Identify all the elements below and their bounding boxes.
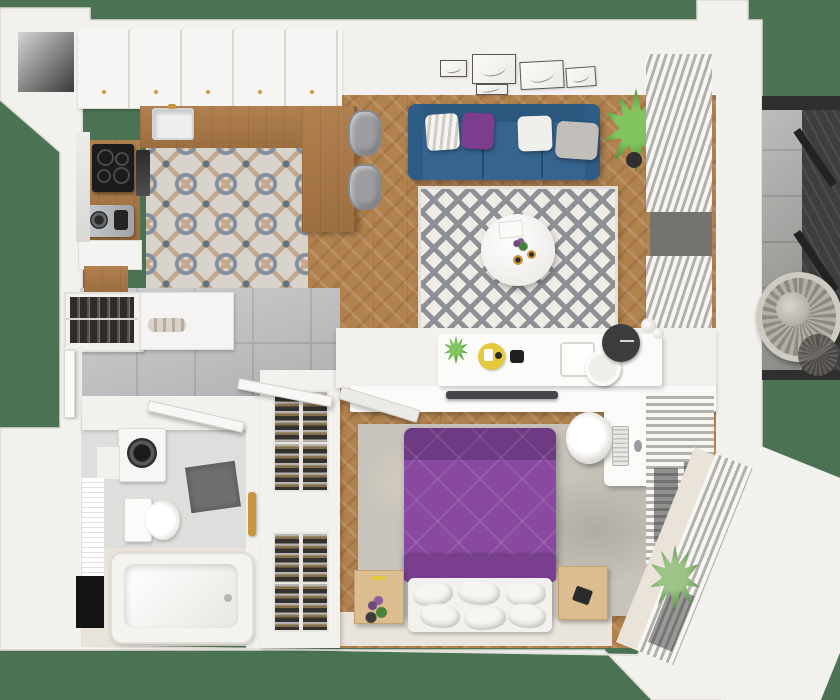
- sofa-pillow-purple: [461, 112, 495, 150]
- nightstand-handle: [372, 576, 386, 580]
- marble-splash-strip: [76, 132, 90, 242]
- toilet-bowl: [146, 500, 180, 540]
- kitchen-floor-tile: [146, 144, 308, 292]
- sofa-pillow-striped: [425, 113, 460, 151]
- shower-mat: [185, 461, 241, 514]
- toilet-paper-holder: [126, 546, 138, 551]
- sphere-lamp: [653, 328, 664, 339]
- oven-panel: [136, 150, 150, 196]
- shoe-rack-module: [273, 582, 329, 632]
- sofa-pillow-gray: [555, 121, 599, 161]
- sink-faucet: [168, 104, 176, 109]
- clock-dot: [618, 331, 623, 336]
- cooktop-burner: [113, 167, 130, 184]
- console-speaker: [510, 350, 524, 363]
- wall-art-frame: [476, 84, 508, 95]
- wardrobe-hanging-clothes: [70, 297, 134, 343]
- wardrobe-rail: [66, 318, 138, 320]
- bed-quilt-pattern: [404, 428, 556, 574]
- floor-plan-canvas: [0, 0, 840, 700]
- office-chair: [566, 412, 612, 464]
- keyboard: [612, 426, 629, 466]
- clock-hand: [620, 340, 634, 342]
- wicker-chair-mesh: [798, 334, 838, 376]
- washer-door: [127, 438, 157, 468]
- wall-clock: [602, 324, 640, 362]
- candle: [513, 255, 523, 265]
- bath-drain: [224, 594, 232, 602]
- entry-door-leaf: [64, 350, 75, 418]
- towel-rolls: [148, 318, 186, 332]
- wicker-chair-cushion: [776, 292, 810, 326]
- shoe-rack-module: [273, 442, 329, 492]
- wall-art-frame: [440, 60, 467, 77]
- sofa-armrest: [408, 104, 423, 180]
- tray-cup: [484, 349, 493, 361]
- living-window-blinds-upper: [646, 54, 712, 212]
- kitchen-upper-cabinets: [78, 30, 342, 109]
- coffee-table-book: [498, 220, 524, 239]
- wall-art-frame: [519, 60, 564, 90]
- wall-tv: [446, 391, 558, 399]
- dining-chair: [348, 110, 382, 156]
- shoe-rack-module: [273, 532, 329, 584]
- wall-art-frame: [565, 66, 596, 88]
- nightstand-plant-flowers: [362, 592, 392, 626]
- coffee-machine-hopper: [114, 210, 128, 230]
- bath-faucet: [132, 590, 143, 601]
- dining-chair: [348, 164, 382, 210]
- black-panel: [76, 576, 104, 628]
- bath-handles: [130, 606, 144, 610]
- cooktop-burner: [97, 149, 114, 166]
- cooktop-burner: [97, 169, 111, 183]
- hall-wood-shelf: [84, 266, 128, 292]
- coffee-table-flowers: [512, 238, 528, 252]
- shower-column: [248, 492, 256, 536]
- wall-art-frame: [472, 54, 516, 84]
- sofa-pillow-white: [517, 115, 552, 151]
- balcony-lintel: [762, 96, 840, 110]
- coffee-machine-dial: [90, 211, 108, 229]
- mouse: [634, 440, 642, 452]
- candle: [527, 250, 536, 259]
- cooktop-burner: [115, 152, 129, 166]
- shaft-nook: [18, 32, 74, 92]
- plant-pot: [626, 152, 642, 168]
- kitchen-sink: [152, 108, 194, 140]
- bath-side-cabinet: [96, 446, 120, 480]
- tray-trinket: [569, 350, 581, 362]
- tray-dot: [495, 352, 502, 359]
- living-window-frame: [650, 212, 712, 256]
